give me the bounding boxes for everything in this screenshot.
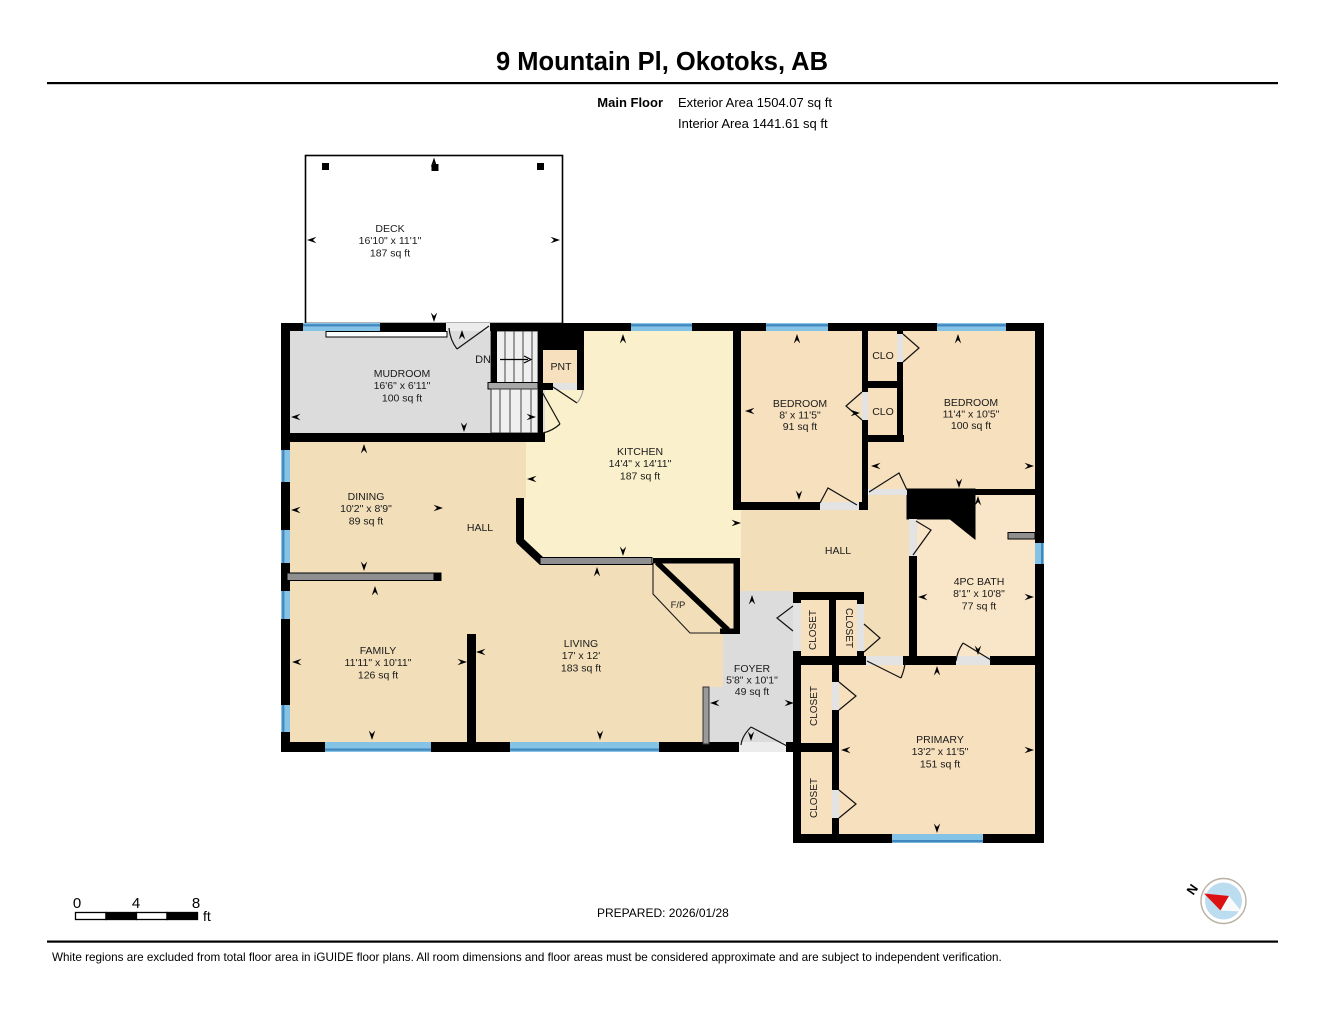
svg-text:11'11" x 10'11": 11'11" x 10'11": [345, 657, 412, 669]
svg-text:9 Mountain Pl, Okotoks, AB: 9 Mountain Pl, Okotoks, AB: [496, 48, 828, 76]
svg-text:11'4" x 10'5": 11'4" x 10'5": [943, 409, 1000, 421]
svg-text:8: 8: [192, 895, 200, 912]
svg-text:MUDROOM: MUDROOM: [374, 368, 431, 380]
svg-text:ft: ft: [203, 908, 211, 924]
svg-text:CLOSET: CLOSET: [809, 778, 820, 818]
svg-text:10'2" x 8'9": 10'2" x 8'9": [340, 503, 392, 515]
svg-text:100 sq ft: 100 sq ft: [951, 420, 991, 432]
svg-text:CLO: CLO: [872, 406, 894, 418]
svg-text:PRIMARY: PRIMARY: [916, 734, 964, 746]
svg-text:5'8" x 10'1": 5'8" x 10'1": [726, 675, 778, 687]
svg-text:PNT: PNT: [551, 361, 573, 373]
svg-text:CLOSET: CLOSET: [809, 686, 820, 726]
svg-text:17' x 12': 17' x 12': [562, 650, 600, 662]
svg-text:8'1" x 10'8": 8'1" x 10'8": [953, 588, 1005, 600]
svg-text:151 sq ft: 151 sq ft: [920, 758, 960, 770]
svg-text:89 sq ft: 89 sq ft: [349, 515, 384, 527]
svg-text:FOYER: FOYER: [734, 663, 771, 675]
svg-text:DECK: DECK: [375, 223, 404, 235]
svg-text:BEDROOM: BEDROOM: [944, 397, 998, 409]
svg-text:187 sq ft: 187 sq ft: [620, 470, 660, 482]
svg-text:100 sq ft: 100 sq ft: [382, 392, 422, 404]
svg-text:16'6" x 6'11": 16'6" x 6'11": [374, 380, 431, 392]
svg-text:KITCHEN: KITCHEN: [617, 446, 663, 458]
svg-text:Exterior Area 1504.07 sq ft: Exterior Area 1504.07 sq ft: [678, 95, 832, 110]
svg-text:8' x 11'5": 8' x 11'5": [779, 410, 821, 422]
svg-text:DINING: DINING: [348, 491, 385, 503]
svg-text:49 sq ft: 49 sq ft: [735, 686, 770, 698]
svg-text:126 sq ft: 126 sq ft: [358, 669, 398, 681]
svg-text:White regions are excluded fro: White regions are excluded from total fl…: [52, 951, 1002, 964]
svg-text:187 sq ft: 187 sq ft: [370, 247, 410, 259]
svg-text:4: 4: [132, 895, 140, 912]
svg-text:14'4" x 14'11": 14'4" x 14'11": [609, 458, 672, 470]
svg-text:77 sq ft: 77 sq ft: [962, 600, 997, 612]
svg-text:0: 0: [73, 895, 81, 912]
svg-text:HALL: HALL: [825, 545, 851, 557]
svg-text:BEDROOM: BEDROOM: [773, 398, 827, 410]
svg-text:13'2" x 11'5": 13'2" x 11'5": [912, 746, 969, 758]
svg-text:CLO: CLO: [872, 350, 894, 362]
svg-text:4PC BATH: 4PC BATH: [954, 576, 1005, 588]
svg-text:CLOSET: CLOSET: [808, 610, 819, 650]
svg-text:F/P: F/P: [671, 600, 686, 611]
svg-text:183 sq ft: 183 sq ft: [561, 662, 601, 674]
svg-text:PREPARED: 2026/01/28: PREPARED: 2026/01/28: [597, 906, 729, 920]
svg-text:Interior Area 1441.61 sq ft: Interior Area 1441.61 sq ft: [678, 116, 828, 131]
svg-text:FAMILY: FAMILY: [360, 645, 397, 657]
svg-text:HALL: HALL: [467, 522, 493, 534]
svg-text:91 sq ft: 91 sq ft: [783, 421, 818, 433]
svg-text:16'10" x 11'1": 16'10" x 11'1": [359, 235, 422, 247]
svg-text:LIVING: LIVING: [564, 638, 598, 650]
svg-text:Main Floor: Main Floor: [597, 95, 663, 110]
svg-text:DN: DN: [475, 354, 491, 366]
svg-text:CLOSET: CLOSET: [843, 608, 854, 648]
